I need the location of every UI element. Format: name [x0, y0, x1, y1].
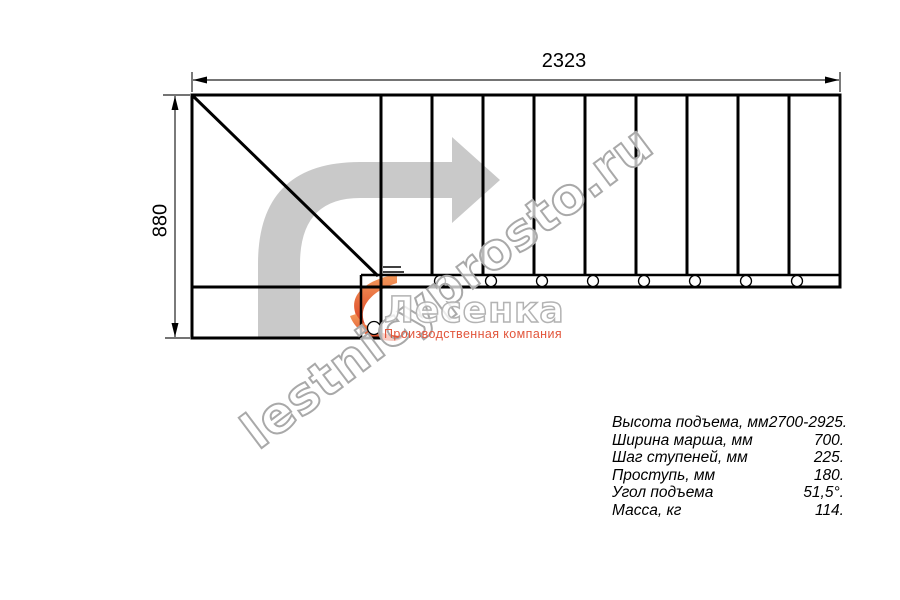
- spec-row: Угол подъема 51,5°.: [612, 484, 844, 502]
- dim-width-label: 2323: [524, 50, 604, 73]
- spec-value: 700.: [814, 432, 844, 450]
- spec-label: Ширина марша, мм: [612, 432, 753, 450]
- brand-tagline: Производственная компания: [384, 327, 562, 341]
- spec-value: 2700-2925.: [769, 414, 847, 432]
- spec-row: Масса, кг 114.: [612, 502, 844, 520]
- spec-row: Ширина марша, мм 700.: [612, 432, 844, 450]
- spec-row: Шаг ступеней, мм 225.: [612, 449, 844, 467]
- spec-label: Высота подъема, мм: [612, 414, 769, 432]
- spec-label: Проступь, мм: [612, 467, 715, 485]
- spec-value: 51,5°.: [803, 484, 844, 502]
- spec-value: 180.: [814, 467, 844, 485]
- spec-value: 225.: [814, 449, 844, 467]
- spec-value: 114.: [815, 502, 844, 520]
- spec-row: Проступь, мм 180.: [612, 467, 844, 485]
- spec-label: Масса, кг: [612, 502, 681, 520]
- spec-label: Угол подъема: [612, 484, 713, 502]
- brand-logo-text: Лесенка: [384, 290, 565, 331]
- stair-plan-drawing: 2323 880 lestnicyprosto.ru Лесенка Произ…: [0, 0, 900, 600]
- spec-label: Шаг ступеней, мм: [612, 449, 748, 467]
- spec-row: Высота подъема, мм 2700-2925.: [612, 414, 844, 432]
- corner-step-marks: [383, 267, 404, 272]
- spec-table: Высота подъема, мм 2700-2925. Ширина мар…: [612, 414, 844, 519]
- dim-height-label: 880: [150, 191, 173, 251]
